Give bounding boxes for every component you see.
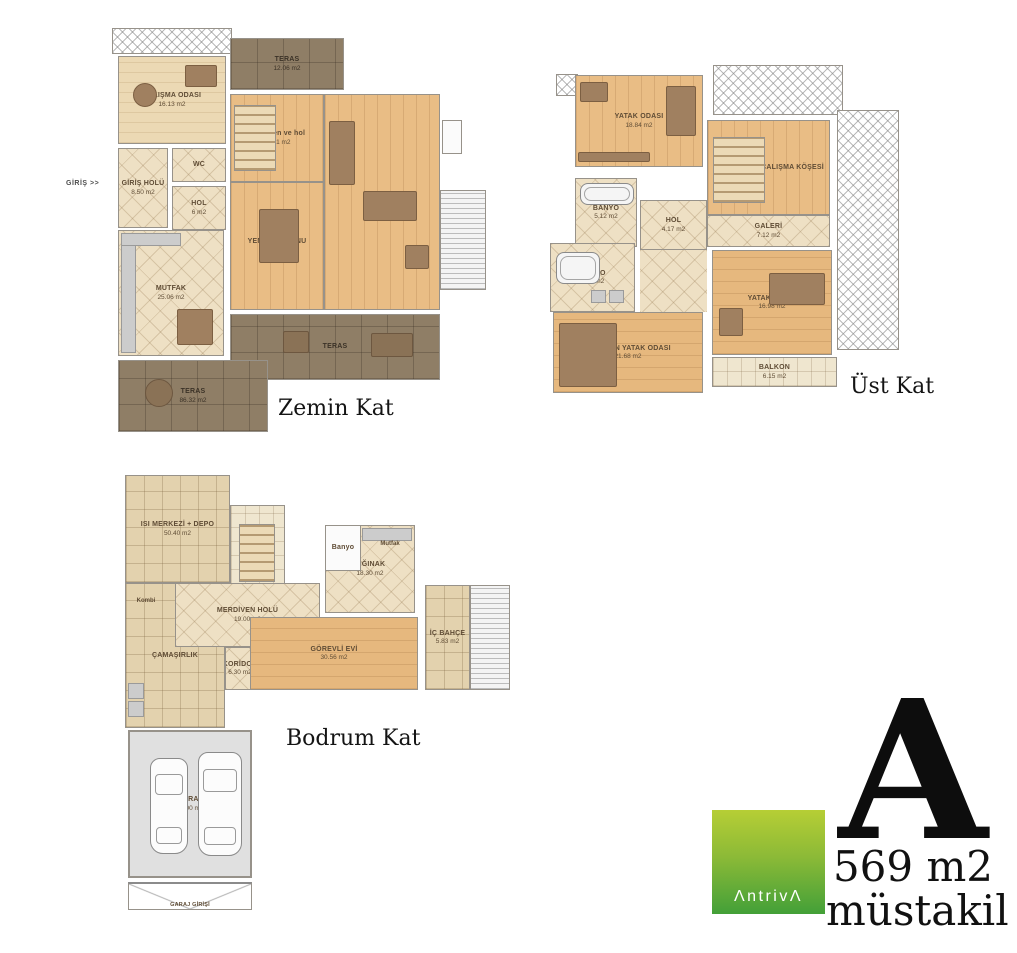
washing-machine [128, 701, 144, 717]
title-ust-kat: Üst Kat [850, 374, 934, 399]
room-teras-ust: TERAS 12.06 m2 [230, 38, 344, 90]
bathtub [556, 252, 600, 284]
roof-side-hatch [837, 110, 899, 350]
garage-ramp: GARAJ GİRİŞİ [128, 882, 252, 910]
roof-terrace-hatch [713, 65, 843, 115]
terrace-chair [283, 331, 309, 353]
title-bodrum-kat: Bodrum Kat [286, 726, 420, 751]
sink [591, 290, 606, 303]
brand-name: ΛntrivΛ [734, 888, 803, 906]
kitchen-table [177, 309, 213, 345]
room-galeri: GALERİ 7.12 m2 [707, 215, 830, 247]
room-yemek-salonu: YEMEK SALONU 21.29 m2 [230, 182, 324, 310]
unit-letter: A [826, 676, 1000, 868]
plan-bodrum-kat: ÇAMAŞIRLIK ISI MERKEZİ + DEPO 50.40 m2 8… [118, 462, 518, 917]
kitchen-counter [362, 528, 412, 541]
room-mutfak: MUTFAK 25.06 m2 [118, 230, 224, 356]
room-calisma-kosesi: ÇALIŞMA KÖŞESİ [707, 120, 830, 215]
bed [559, 323, 617, 387]
plan-zemin-kat: ÇALIŞMA ODASI 16.13 m2 TERAS 12.06 m2 me… [108, 28, 488, 432]
plan-ust-kat: YATAK ODASI 18.84 m2 ÇALIŞMA KÖŞESİ BANY… [548, 62, 916, 410]
desk [719, 308, 743, 336]
kitchen-counter [121, 233, 136, 353]
room-banyo-1: BANYO 5.12 m2 [575, 178, 637, 247]
entry-arrow-label: GİRİŞ >> [66, 180, 99, 187]
room-merdiven-ve-hol: merdiven ve hol 17.21 m2 [230, 94, 324, 182]
terrace-table [145, 379, 173, 407]
room-merdiven-bodrum: 8 m2 [230, 505, 285, 585]
terrace-sofa [371, 333, 413, 357]
sofa [329, 121, 355, 185]
room-balkon: BALKON 6.15 m2 [712, 357, 837, 387]
room-garaj: GARAJ 45.00 m2 [128, 730, 252, 878]
staircase [713, 137, 765, 203]
roof-hatch [112, 28, 232, 54]
chimney-niche [442, 120, 462, 154]
room-yasama: YAŞAMA 48.37 m2 [324, 94, 440, 310]
staircase [239, 524, 275, 582]
room-yatak-odasi-1: YATAK ODASI 18.84 m2 [575, 75, 703, 167]
room-wc: WC [172, 148, 226, 182]
garden-deck [440, 190, 486, 290]
room-yatak-odasi-2: YATAK ODASI 16.98 m2 [712, 250, 832, 355]
wardrobe [578, 152, 650, 162]
room-banyo-bodrum: Banyo [325, 525, 361, 571]
car [150, 758, 188, 854]
sink [609, 290, 624, 303]
room-hol: HOL 6 m2 [172, 186, 226, 230]
bed [769, 273, 825, 305]
title-zemin-kat: Zemin Kat [278, 396, 394, 421]
unit-type: müstakil [826, 890, 1000, 932]
antriva-logo: ΛntrivΛ [712, 810, 825, 914]
room-giris-holu: GİRİŞ HOLÜ 8.50 m2 [118, 148, 168, 228]
washing-machine [128, 683, 144, 699]
staircase [234, 105, 276, 171]
bathtub [580, 183, 634, 205]
desk [580, 82, 608, 102]
garden-deck [470, 585, 510, 690]
table [133, 83, 157, 107]
landing [640, 250, 707, 312]
sofa [363, 191, 417, 221]
car [198, 752, 242, 856]
bed [666, 86, 696, 136]
label-mutfak-bodrum: Mutfak [368, 541, 412, 547]
room-isi-merkezi-depo: ISI MERKEZİ + DEPO 50.40 m2 [125, 475, 230, 583]
room-ebeveyn-yatak-odasi: EBEVEYN YATAK ODASI 21.68 m2 [553, 312, 703, 393]
kitchen-counter [121, 233, 181, 246]
room-calisma-odasi: ÇALIŞMA ODASI 16.13 m2 [118, 56, 226, 144]
dining-table [259, 209, 299, 263]
unit-area: 569 m2 [826, 846, 1000, 888]
floorplan-sheet: ÇALIŞMA ODASI 16.13 m2 TERAS 12.06 m2 me… [0, 0, 1017, 953]
label-kombi: Kombi [128, 598, 164, 604]
room-hol-ust: HOL 4.17 m2 [640, 200, 707, 250]
room-teras-alt: TERAS 86.32 m2 [118, 360, 268, 432]
armchair [405, 245, 429, 269]
desk [185, 65, 217, 87]
room-banyo-2: BANYO 6.04 m2 [550, 243, 635, 312]
room-ic-bahce: İÇ BAHÇE 5.83 m2 [425, 585, 470, 690]
room-gorevli-evi: GÖREVLİ EVİ 30.56 m2 [250, 617, 418, 690]
